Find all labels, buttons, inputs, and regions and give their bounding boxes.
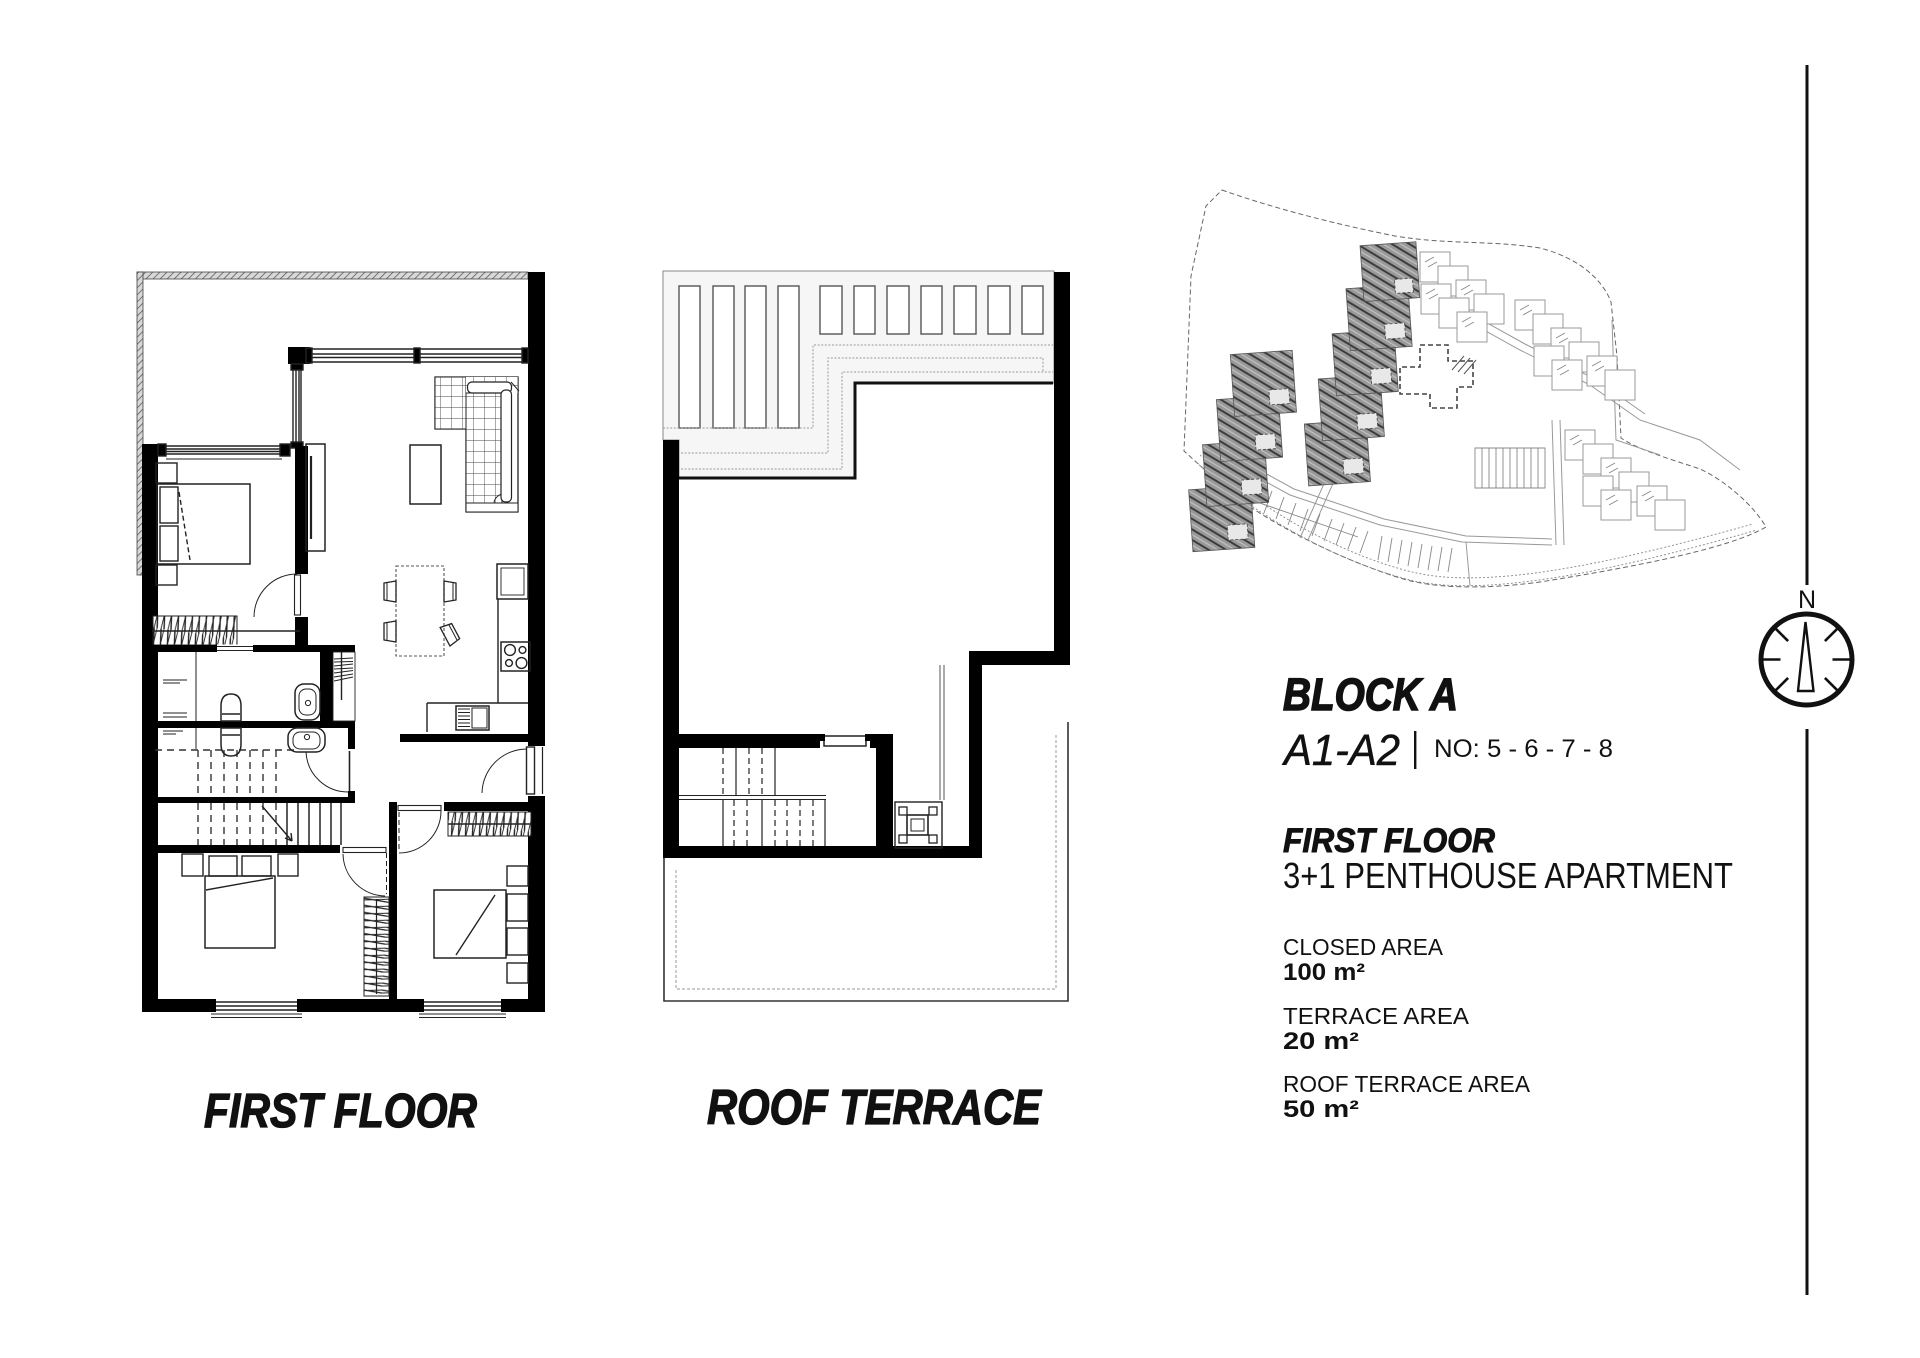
svg-text:A1-A2: A1-A2 xyxy=(1281,726,1400,775)
svg-text:50 m²: 50 m² xyxy=(1283,1096,1359,1123)
svg-text:ROOF TERRACE: ROOF TERRACE xyxy=(707,1081,1042,1135)
svg-text:100 m²: 100 m² xyxy=(1283,959,1365,986)
svg-text:NO: 5 - 6 - 7 - 8: NO: 5 - 6 - 7 - 8 xyxy=(1434,735,1613,763)
svg-text:CLOSED AREA: CLOSED AREA xyxy=(1283,934,1443,960)
svg-text:ROOF TERRACE AREA: ROOF TERRACE AREA xyxy=(1283,1071,1530,1097)
svg-text:N: N xyxy=(1798,586,1816,614)
svg-text:TERRACE AREA: TERRACE AREA xyxy=(1283,1003,1469,1029)
svg-text:3+1 PENTHOUSE APARTMENT: 3+1 PENTHOUSE APARTMENT xyxy=(1283,855,1733,896)
svg-text:FIRST FLOOR: FIRST FLOOR xyxy=(204,1085,477,1138)
svg-text:20 m²: 20 m² xyxy=(1283,1028,1359,1055)
svg-text:BLOCK A: BLOCK A xyxy=(1283,669,1458,720)
